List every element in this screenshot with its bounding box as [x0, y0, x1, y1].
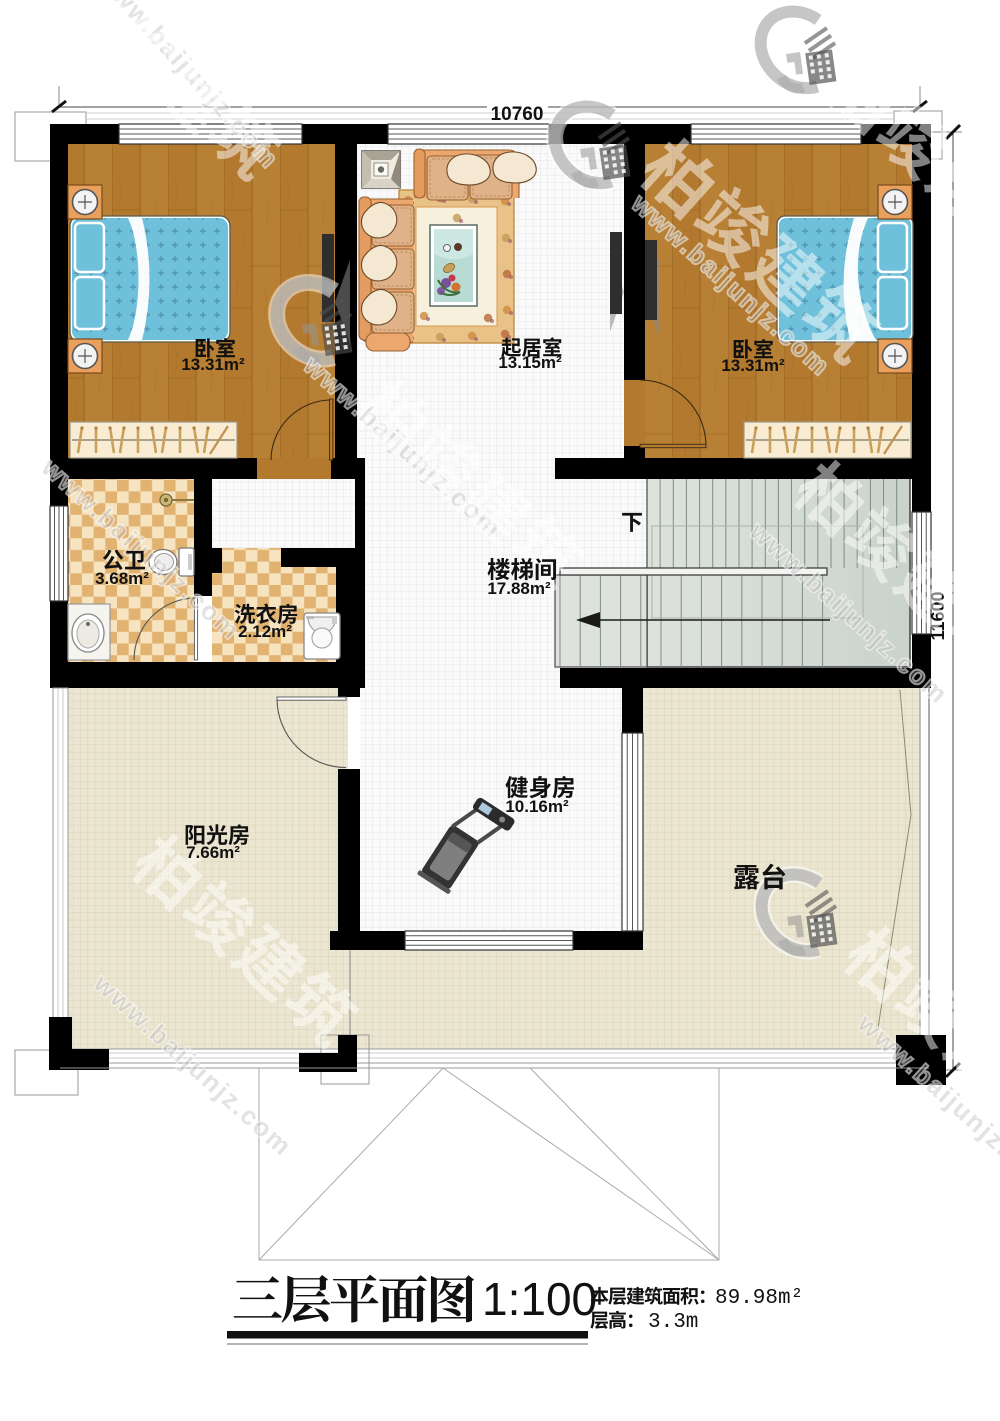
- svg-text:17.88m²: 17.88m²: [487, 579, 551, 598]
- svg-text:3.68m²: 3.68m²: [95, 569, 149, 588]
- svg-text:13.31m²: 13.31m²: [721, 356, 785, 375]
- svg-text:13.15m²: 13.15m²: [498, 353, 562, 372]
- svg-text:10.16m²: 10.16m²: [505, 797, 569, 816]
- svg-text:13.31m²: 13.31m²: [181, 355, 245, 374]
- svg-text:2.12m²: 2.12m²: [238, 622, 292, 641]
- svg-text:89.98m²: 89.98m²: [715, 1287, 803, 1310]
- svg-text:1:100: 1:100: [482, 1273, 597, 1325]
- svg-text:10760: 10760: [491, 104, 544, 125]
- svg-text:7.66m²: 7.66m²: [186, 843, 240, 862]
- svg-text:3.3m: 3.3m: [648, 1311, 698, 1334]
